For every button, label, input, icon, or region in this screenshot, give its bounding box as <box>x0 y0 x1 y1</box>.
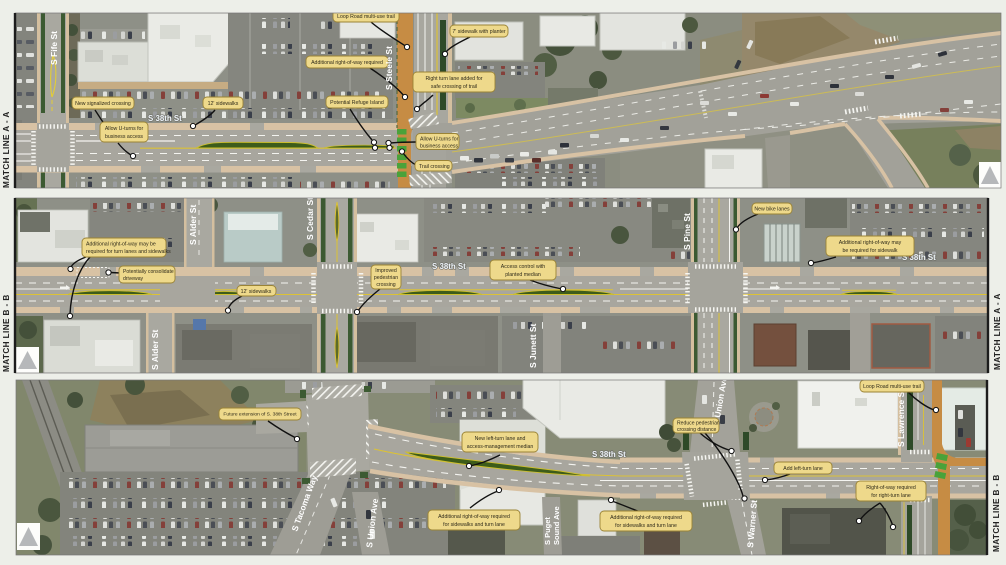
svg-text:New bike lanes: New bike lanes <box>754 207 790 213</box>
svg-text:Additional right-of-way requir: Additional right-of-way required <box>311 60 383 66</box>
svg-text:MATCH LINE A - A: MATCH LINE A - A <box>993 293 1002 370</box>
svg-text:S Alder St: S Alder St <box>150 330 160 370</box>
svg-text:Trail crossing: Trail crossing <box>419 164 450 170</box>
svg-text:business access: business access <box>105 134 143 140</box>
svg-text:crossing distance: crossing distance <box>677 427 717 433</box>
svg-text:S Puget: S Puget <box>543 517 552 545</box>
svg-text:Access control with: Access control with <box>501 264 546 270</box>
svg-text:12' sidewalks: 12' sidewalks <box>208 101 239 107</box>
svg-text:Improved: Improved <box>375 268 397 274</box>
svg-text:Potentially consolidate: Potentially consolidate <box>123 269 174 275</box>
svg-text:access-management median: access-management median <box>467 444 534 450</box>
svg-text:for right-turn lane: for right-turn lane <box>871 493 911 499</box>
svg-text:S Fife St: S Fife St <box>49 31 59 65</box>
svg-text:S 38th St: S 38th St <box>432 262 466 271</box>
svg-text:12' sidewalks: 12' sidewalks <box>241 289 272 295</box>
svg-text:Potential Refuge Island: Potential Refuge Island <box>330 100 384 106</box>
svg-text:Right turn lane added for: Right turn lane added for <box>425 76 482 82</box>
svg-text:for sidewalks and turn lane: for sidewalks and turn lane <box>615 523 677 529</box>
svg-text:Loop Road multi-use trail: Loop Road multi-use trail <box>863 384 921 390</box>
svg-text:Additional right-of-way may be: Additional right-of-way may be <box>86 242 156 248</box>
svg-text:MATCH LINE B - B: MATCH LINE B - B <box>992 474 1001 552</box>
svg-text:S Alder St: S Alder St <box>188 205 198 245</box>
svg-text:be required for sidewalk: be required for sidewalk <box>842 248 897 254</box>
svg-text:required for turn lanes and si: required for turn lanes and sidewalks <box>86 249 171 255</box>
svg-text:Right-of-way required: Right-of-way required <box>866 485 916 491</box>
svg-text:Future extension of S. 38th St: Future extension of S. 38th Street <box>223 412 297 418</box>
svg-text:S Lawrence St: S Lawrence St <box>896 389 906 447</box>
svg-text:S Cedar St: S Cedar St <box>305 197 315 240</box>
svg-text:S 38th St: S 38th St <box>148 114 182 123</box>
svg-text:Additional right-of-way requir: Additional right-of-way required <box>438 514 510 520</box>
svg-text:Reduce pedestrian: Reduce pedestrian <box>677 421 720 427</box>
svg-text:crossing: crossing <box>376 282 395 288</box>
svg-text:for sidewalks and turn lane: for sidewalks and turn lane <box>443 522 505 528</box>
svg-text:driveway: driveway <box>123 276 144 282</box>
svg-text:S Steele St: S Steele St <box>384 46 394 90</box>
svg-text:Additional right-of-way requir: Additional right-of-way required <box>610 515 682 521</box>
svg-text:Sound Ave: Sound Ave <box>552 506 561 545</box>
svg-text:S 38th St: S 38th St <box>592 450 626 459</box>
svg-text:S Pine St: S Pine St <box>682 213 692 250</box>
svg-text:Add left-turn lane: Add left-turn lane <box>783 466 823 472</box>
svg-text:Allow U-turns for: Allow U-turns for <box>420 137 459 143</box>
svg-text:pedestrian: pedestrian <box>374 275 398 281</box>
svg-text:planted median: planted median <box>505 272 541 278</box>
svg-text:MATCH LINE B - B: MATCH LINE B - B <box>2 294 11 372</box>
svg-text:S Junett St: S Junett St <box>528 323 538 368</box>
svg-text:safe crossing of trail: safe crossing of trail <box>431 84 477 90</box>
svg-text:Additional right-of-way may: Additional right-of-way may <box>839 240 902 246</box>
svg-text:New signalized crossing: New signalized crossing <box>75 101 131 107</box>
svg-text:Allow U-turns for: Allow U-turns for <box>105 126 144 132</box>
svg-text:New left-turn lane and: New left-turn lane and <box>475 436 526 442</box>
svg-text:Loop Road multi-use trail: Loop Road multi-use trail <box>337 14 395 20</box>
svg-text:7' sidewalk with planter: 7' sidewalk with planter <box>452 29 505 35</box>
svg-text:MATCH LINE A - A: MATCH LINE A - A <box>2 111 11 188</box>
svg-text:business access: business access <box>420 144 458 150</box>
